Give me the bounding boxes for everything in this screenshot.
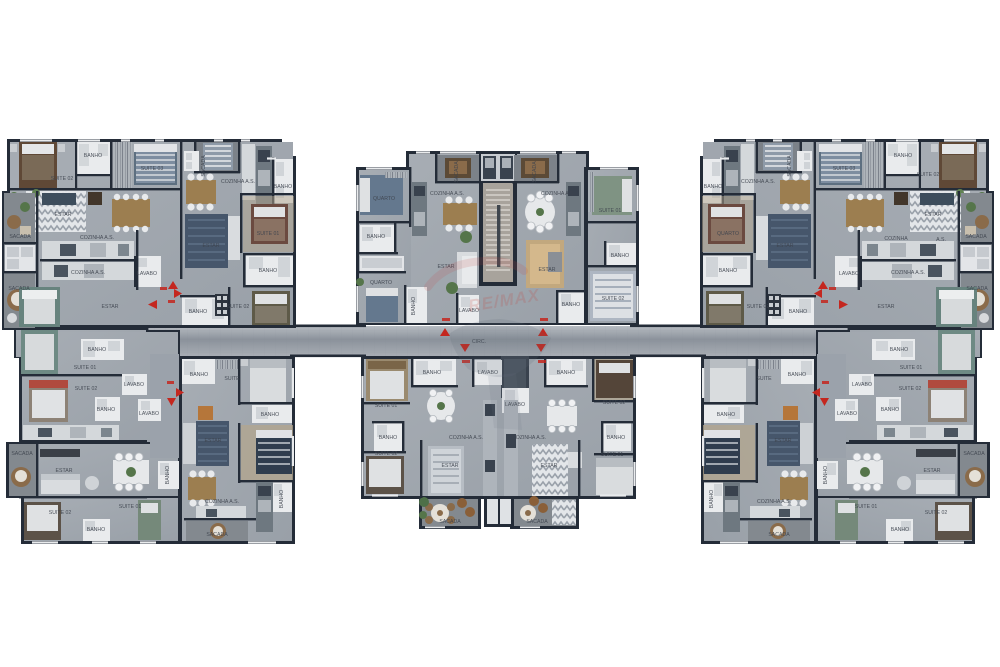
- svg-text:COZINHA: COZINHA: [884, 236, 908, 242]
- svg-text:QUARTO: QUARTO: [373, 196, 395, 202]
- svg-text:QUARTO: QUARTO: [717, 231, 739, 237]
- svg-text:ESTAR: ESTAR: [55, 212, 72, 218]
- svg-text:LAVABO: LAVABO: [837, 411, 857, 417]
- svg-text:LAVABO: LAVABO: [137, 271, 157, 277]
- svg-text:SUITE 02: SUITE 02: [49, 510, 72, 516]
- svg-text:COZINHA A.S.: COZINHA A.S.: [205, 499, 239, 505]
- svg-text:COZINHA A.S.: COZINHA A.S.: [541, 191, 575, 197]
- svg-text:BANHO: BANHO: [789, 309, 807, 315]
- svg-text:SUITE 03: SUITE 03: [833, 166, 856, 172]
- svg-text:LAVABO: LAVABO: [839, 271, 859, 277]
- svg-text:BANHO: BANHO: [367, 234, 385, 240]
- svg-text:SUITE 02: SUITE 02: [603, 400, 626, 406]
- svg-text:ESTAR: ESTAR: [878, 304, 895, 310]
- svg-text:BANHO: BANHO: [87, 527, 105, 533]
- svg-text:SACADA: SACADA: [201, 155, 207, 177]
- svg-text:SUITE 01: SUITE 01: [257, 231, 280, 237]
- svg-text:SACADA: SACADA: [8, 286, 30, 292]
- svg-text:BANHO: BANHO: [719, 268, 737, 274]
- svg-text:BANHO: BANHO: [165, 466, 171, 484]
- svg-text:SACADA: SACADA: [9, 234, 31, 240]
- svg-text:SACADA: SACADA: [966, 286, 988, 292]
- svg-text:SACADA: SACADA: [439, 519, 461, 525]
- svg-text:ESTAR: ESTAR: [924, 468, 941, 474]
- svg-text:BANHO: BANHO: [894, 153, 912, 159]
- svg-text:BANHO: BANHO: [890, 347, 908, 353]
- svg-text:COZINHA A.S.: COZINHA A.S.: [757, 499, 791, 505]
- svg-text:BANHO: BANHO: [279, 490, 285, 508]
- svg-text:SACADA: SACADA: [206, 532, 228, 538]
- svg-text:SACADA: SACADA: [11, 451, 33, 457]
- svg-text:SACADA: SACADA: [454, 161, 460, 183]
- svg-text:SACADA: SACADA: [963, 451, 985, 457]
- svg-text:BANHO: BANHO: [891, 527, 909, 533]
- svg-text:ESTAR: ESTAR: [205, 438, 222, 444]
- svg-text:BANHO: BANHO: [379, 435, 397, 441]
- svg-text:SUITE 01: SUITE 01: [599, 208, 622, 214]
- svg-text:A.S.: A.S.: [936, 237, 946, 243]
- svg-text:SUITE 02: SUITE 02: [925, 510, 948, 516]
- svg-text:ESTAR: ESTAR: [539, 267, 556, 273]
- svg-text:ESTAR: ESTAR: [56, 468, 73, 474]
- svg-text:SUITE 02: SUITE 02: [602, 296, 625, 302]
- svg-text:BANHO: BANHO: [823, 466, 829, 484]
- svg-text:BANHO: BANHO: [881, 407, 899, 413]
- svg-text:BANHO: BANHO: [423, 370, 441, 376]
- svg-text:SUITE 03: SUITE 03: [141, 166, 164, 172]
- svg-text:BANHO: BANHO: [84, 153, 102, 159]
- svg-text:LAVABO: LAVABO: [139, 411, 159, 417]
- svg-text:BANHO: BANHO: [607, 435, 625, 441]
- svg-text:SUITE 01: SUITE 01: [855, 504, 878, 510]
- svg-text:BANHO: BANHO: [259, 268, 277, 274]
- svg-text:BANHO: BANHO: [190, 372, 208, 378]
- svg-text:BANHO: BANHO: [411, 297, 417, 315]
- svg-text:BANHO: BANHO: [788, 372, 806, 378]
- svg-text:BANHO: BANHO: [274, 184, 292, 190]
- svg-text:ESTAR: ESTAR: [777, 243, 794, 249]
- svg-text:LAVABO: LAVABO: [852, 382, 872, 388]
- svg-text:SUITE 02: SUITE 02: [75, 386, 98, 392]
- svg-text:ESTAR: ESTAR: [541, 463, 558, 469]
- svg-text:SUITE 01: SUITE 01: [900, 365, 923, 371]
- svg-text:BANHO: BANHO: [717, 412, 735, 418]
- svg-text:BANHO: BANHO: [709, 490, 715, 508]
- svg-text:COZINHA A.S.: COZINHA A.S.: [80, 235, 114, 241]
- svg-text:SUITE 02: SUITE 02: [227, 304, 250, 310]
- svg-text:SUITE 01: SUITE 01: [601, 452, 624, 458]
- svg-text:SACADA: SACADA: [965, 234, 987, 240]
- svg-text:BANHO: BANHO: [97, 407, 115, 413]
- svg-text:ESTAR: ESTAR: [925, 212, 942, 218]
- svg-text:ESTAR: ESTAR: [442, 463, 459, 469]
- svg-text:SUITE 01: SUITE 01: [119, 504, 142, 510]
- svg-text:SACADA: SACADA: [768, 532, 790, 538]
- svg-text:SACADA: SACADA: [787, 155, 793, 177]
- svg-text:SUITE 01: SUITE 01: [74, 365, 97, 371]
- svg-text:BANHO: BANHO: [189, 309, 207, 315]
- svg-text:COZINHA A.S.: COZINHA A.S.: [221, 179, 255, 185]
- svg-text:COZINHA A.S.: COZINHA A.S.: [430, 191, 464, 197]
- svg-text:BANHO: BANHO: [88, 347, 106, 353]
- svg-text:SUITE 02: SUITE 02: [899, 386, 922, 392]
- svg-text:BANHO: BANHO: [611, 253, 629, 259]
- svg-text:COZINHA A.S.: COZINHA A.S.: [512, 435, 546, 441]
- svg-text:COZINHA A.S.: COZINHA A.S.: [891, 270, 925, 276]
- svg-text:LAVABO: LAVABO: [124, 382, 144, 388]
- svg-text:BANHO: BANHO: [704, 184, 722, 190]
- svg-text:ESTAR: ESTAR: [203, 243, 220, 249]
- svg-text:BANHO: BANHO: [557, 370, 575, 376]
- svg-text:BANHO: BANHO: [261, 412, 279, 418]
- svg-text:SUITE 02: SUITE 02: [51, 176, 74, 182]
- svg-text:SUITE 02: SUITE 02: [747, 304, 770, 310]
- svg-text:SUITE 02: SUITE 02: [375, 451, 398, 457]
- svg-text:COZINHA A.S.: COZINHA A.S.: [449, 435, 483, 441]
- svg-text:SACADA: SACADA: [532, 161, 538, 183]
- svg-text:ESTAR: ESTAR: [775, 438, 792, 444]
- svg-text:SUITE 01: SUITE 01: [375, 403, 398, 409]
- svg-text:BANHO: BANHO: [562, 302, 580, 308]
- svg-text:SUITE 02: SUITE 02: [917, 172, 940, 178]
- svg-text:SACADA: SACADA: [526, 519, 548, 525]
- svg-text:QUARTO: QUARTO: [370, 280, 392, 286]
- svg-text:COZINHA A.S.: COZINHA A.S.: [741, 179, 775, 185]
- svg-text:COZINHA A.S.: COZINHA A.S.: [71, 270, 105, 276]
- svg-text:SUITE: SUITE: [224, 376, 240, 382]
- svg-text:SUITE: SUITE: [756, 376, 772, 382]
- svg-text:ESTAR: ESTAR: [102, 304, 119, 310]
